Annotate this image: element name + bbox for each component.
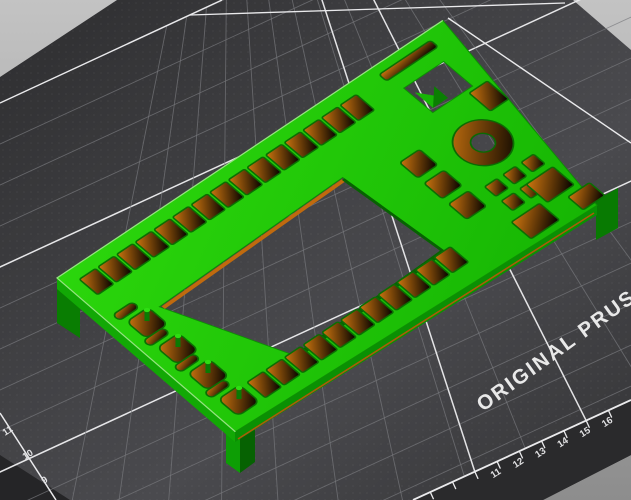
- peg-top: [205, 360, 211, 364]
- peg-top: [144, 308, 150, 312]
- slicer-3d-viewport[interactable]: 11121314151691011 ORIGINAL PRUSA: [0, 0, 631, 500]
- peg-top: [236, 386, 242, 390]
- peg-top: [175, 334, 181, 338]
- scene-canvas: 11121314151691011 ORIGINAL PRUSA: [0, 0, 631, 500]
